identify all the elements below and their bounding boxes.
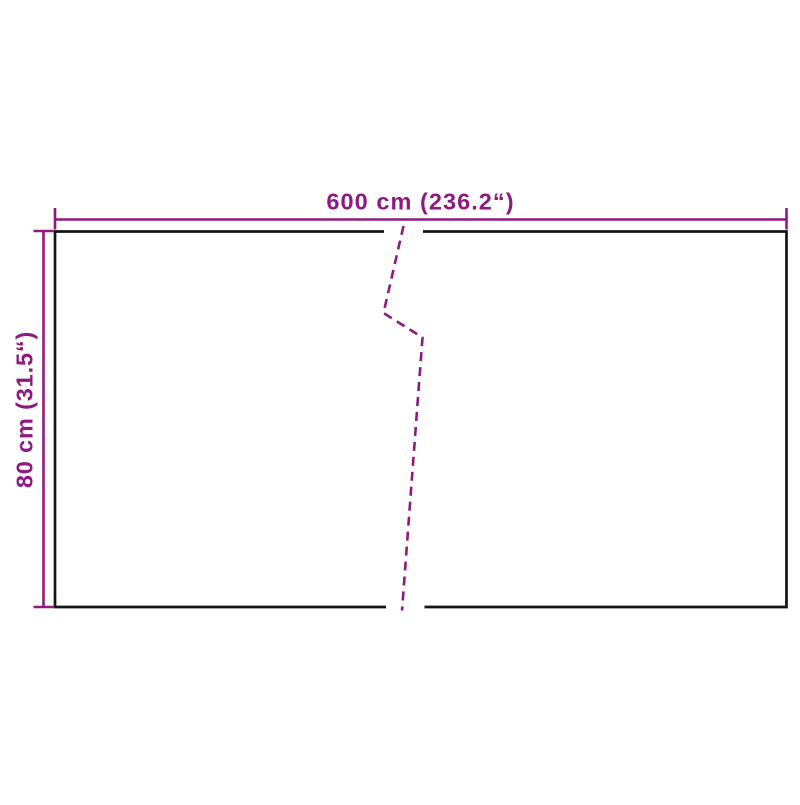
svg-text:600 cm (236.2“): 600 cm (236.2“) <box>326 189 514 215</box>
svg-text:80 cm (31.5“): 80 cm (31.5“) <box>12 331 38 488</box>
